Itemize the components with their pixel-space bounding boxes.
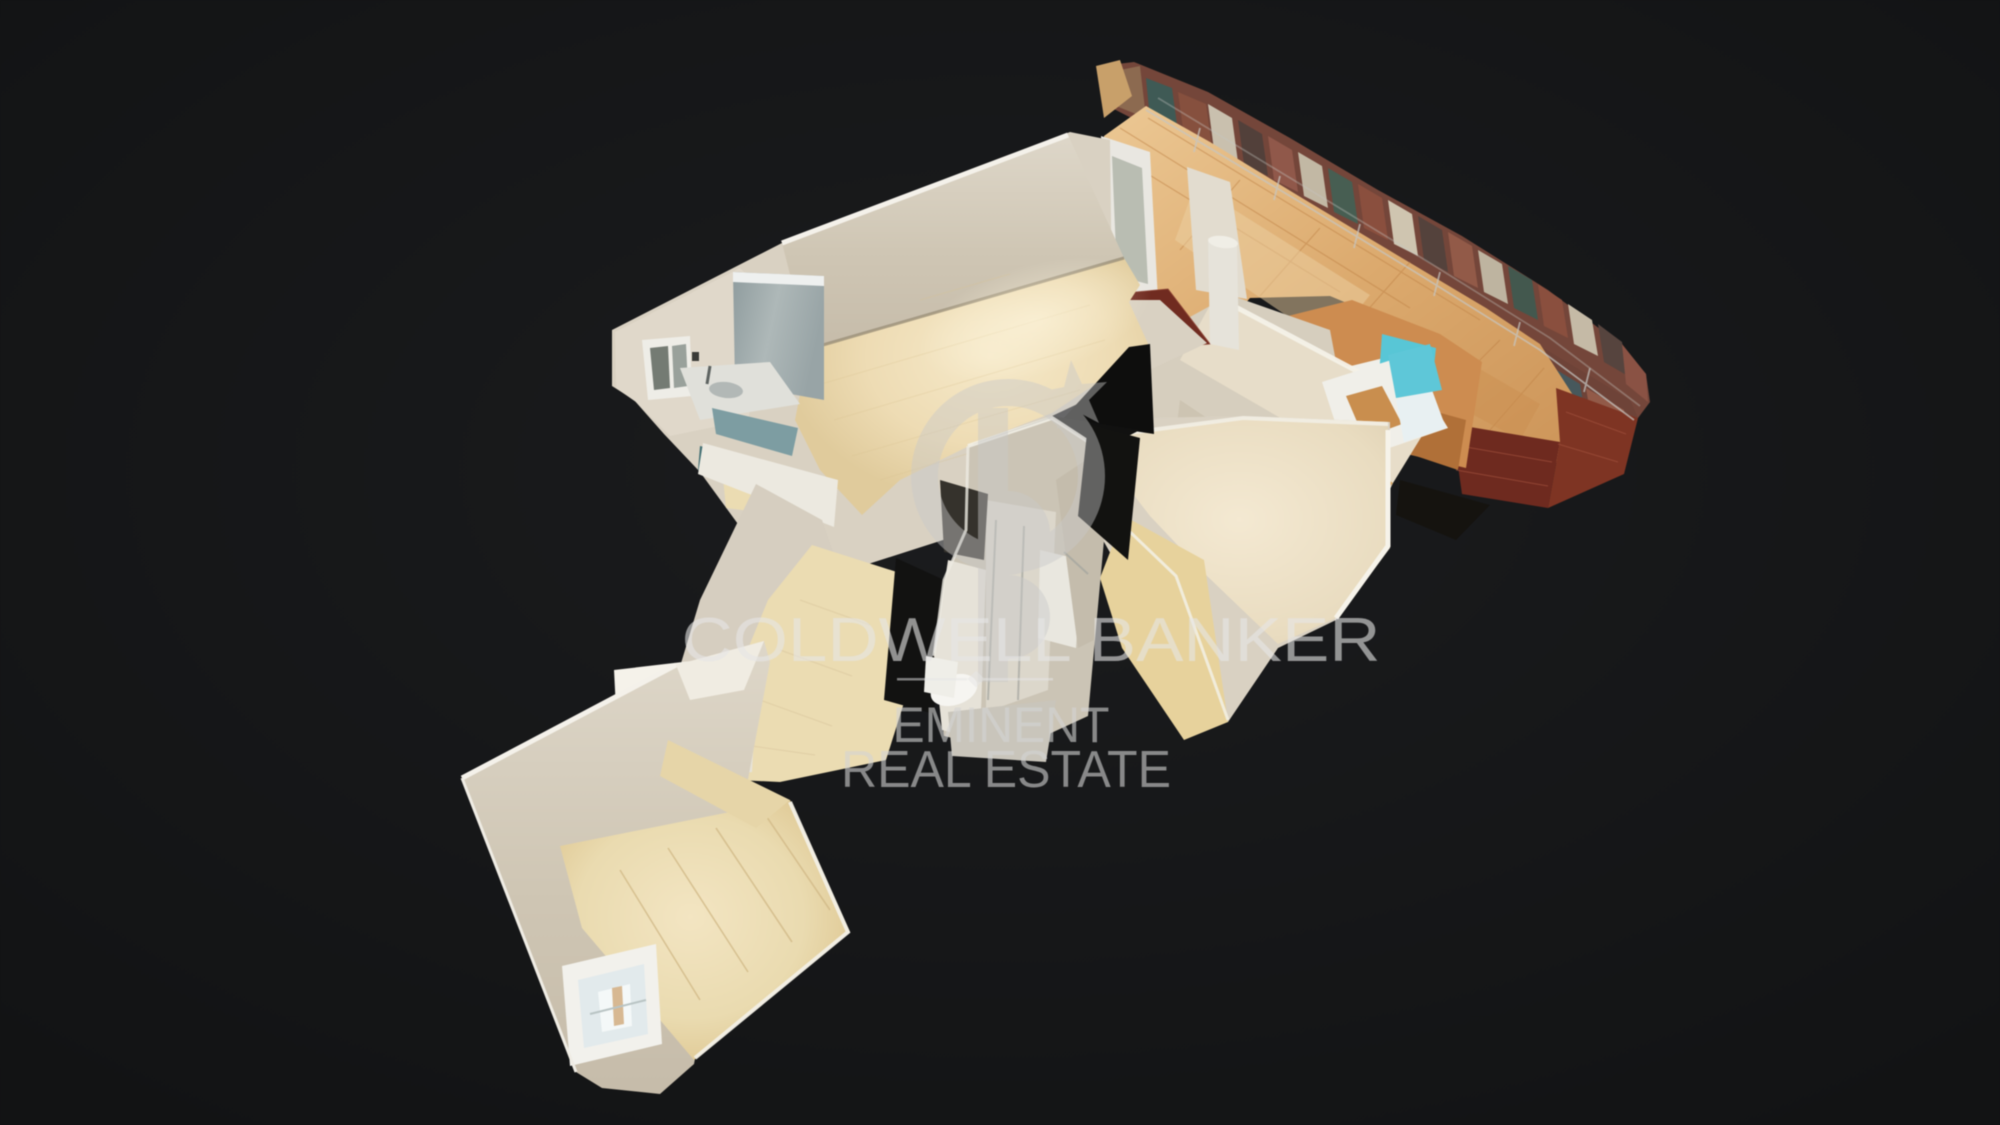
svg-text:REAL ESTATE: REAL ESTATE [841,741,1171,799]
svg-text:COLDWELL BANKER: COLDWELL BANKER [682,606,1381,675]
